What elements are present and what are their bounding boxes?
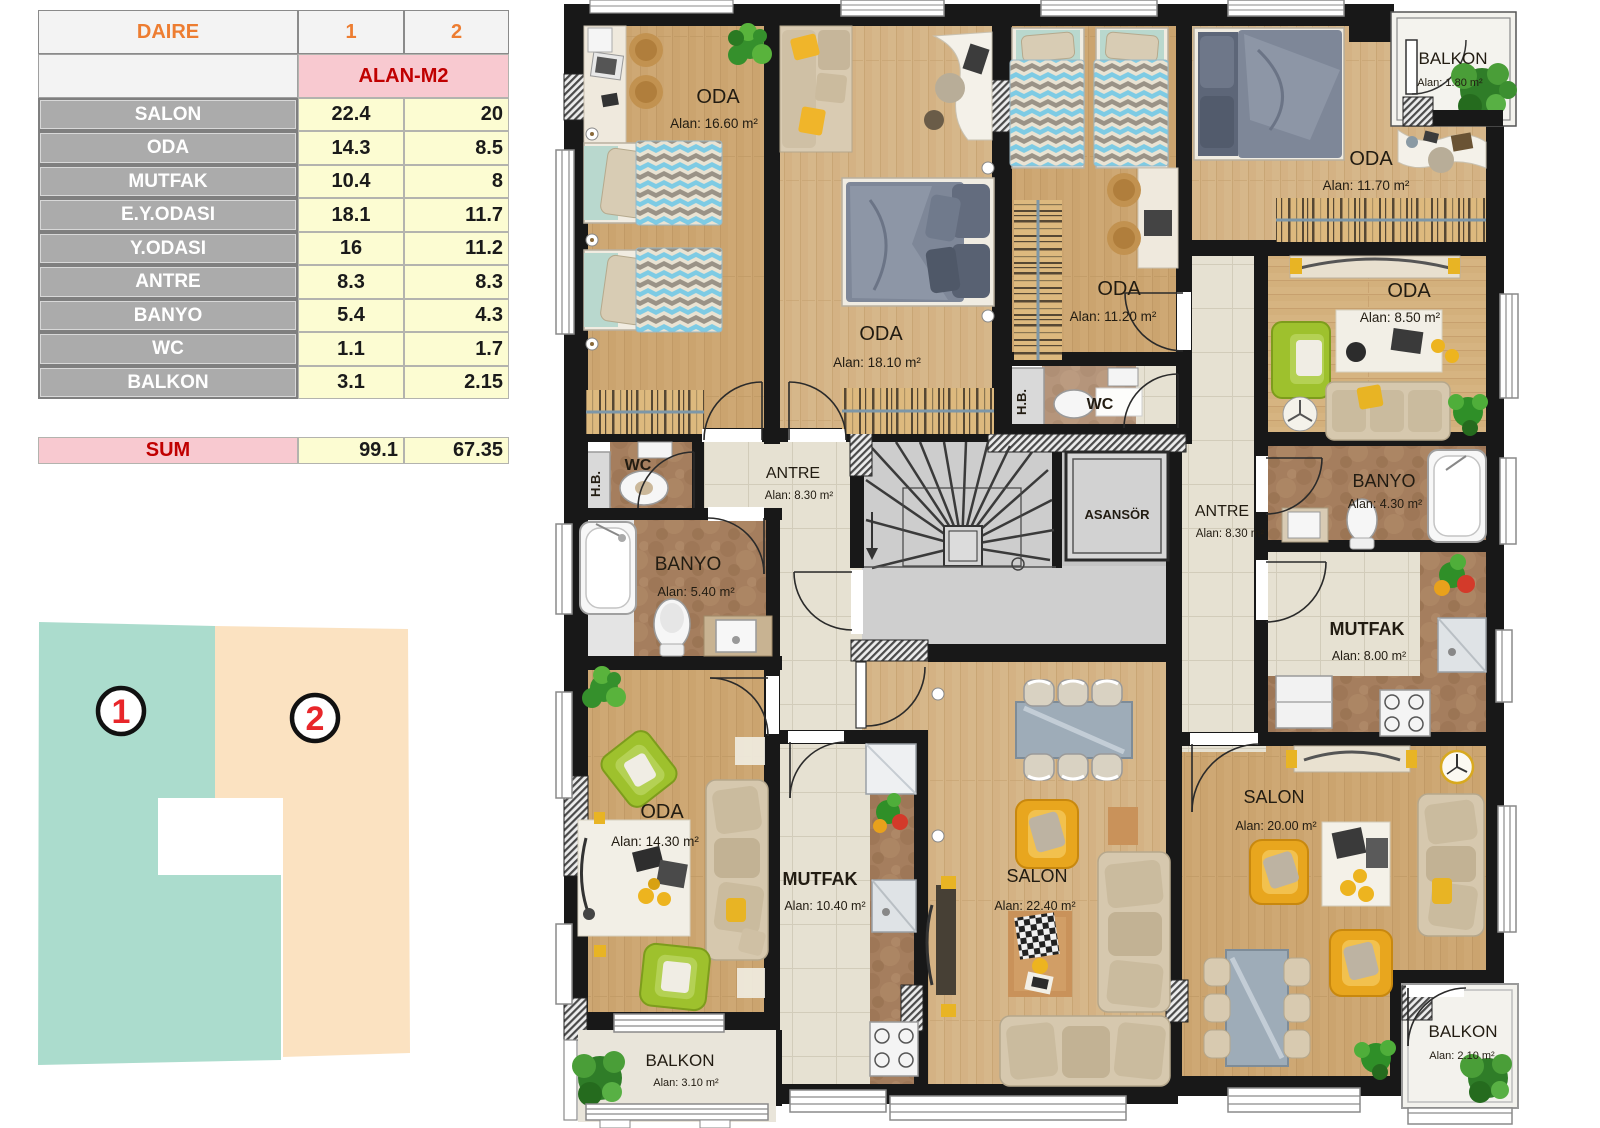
svg-text:Alan: 3.10 m²: Alan: 3.10 m² xyxy=(653,1077,719,1089)
svg-text:MUTFAK: MUTFAK xyxy=(783,869,858,889)
svg-text:BALKON: BALKON xyxy=(1419,49,1488,68)
svg-text:ODA: ODA xyxy=(1097,278,1141,300)
svg-text:Alan: 22.40 m²: Alan: 22.40 m² xyxy=(994,899,1075,913)
svg-text:ODA: ODA xyxy=(696,86,740,108)
svg-text:ODA: ODA xyxy=(1349,148,1393,170)
svg-text:Alan: 8.30 m²: Alan: 8.30 m² xyxy=(765,490,834,502)
svg-text:Alan: 1.80 m²: Alan: 1.80 m² xyxy=(1417,77,1483,89)
svg-text:SALON: SALON xyxy=(1006,866,1067,886)
svg-text:ODA: ODA xyxy=(1387,280,1431,302)
svg-text:Alan: 2.10 m²: Alan: 2.10 m² xyxy=(1429,1050,1495,1062)
svg-text:Alan: 20.00 m²: Alan: 20.00 m² xyxy=(1235,819,1316,833)
svg-text:BALKON: BALKON xyxy=(1429,1022,1498,1041)
svg-text:H.B.: H.B. xyxy=(1014,389,1029,415)
svg-text:Alan: 16.60 m²: Alan: 16.60 m² xyxy=(670,116,758,131)
svg-text:BALKON: BALKON xyxy=(646,1051,715,1070)
svg-text:ODA: ODA xyxy=(859,323,903,345)
svg-text:ANTRE: ANTRE xyxy=(1195,503,1249,520)
svg-text:ANTRE: ANTRE xyxy=(766,465,820,482)
svg-text:Alan: 8.50 m²: Alan: 8.50 m² xyxy=(1360,310,1441,325)
svg-text:Alan: 11.70 m²: Alan: 11.70 m² xyxy=(1323,178,1410,193)
svg-text:Alan: 8.00 m²: Alan: 8.00 m² xyxy=(1332,649,1406,663)
svg-text:Alan: 4.30 m²: Alan: 4.30 m² xyxy=(1348,497,1422,511)
svg-text:H.B.: H.B. xyxy=(588,471,603,497)
svg-text:WC: WC xyxy=(1087,396,1114,413)
svg-text:BANYO: BANYO xyxy=(1352,471,1415,491)
svg-text:2: 2 xyxy=(306,700,325,738)
svg-text:Alan: 8.30 m²: Alan: 8.30 m² xyxy=(1196,528,1265,540)
svg-text:Alan: 11.20 m²: Alan: 11.20 m² xyxy=(1070,309,1157,324)
svg-text:Alan: 18.10 m²: Alan: 18.10 m² xyxy=(833,355,921,370)
svg-text:MUTFAK: MUTFAK xyxy=(1330,619,1405,639)
svg-text:BANYO: BANYO xyxy=(655,554,722,575)
svg-text:Alan: 14.30 m²: Alan: 14.30 m² xyxy=(611,834,699,849)
svg-text:SALON: SALON xyxy=(1243,787,1304,807)
svg-text:ASANSÖR: ASANSÖR xyxy=(1084,507,1150,522)
svg-text:Alan: 5.40 m²: Alan: 5.40 m² xyxy=(657,584,735,599)
svg-text:ODA: ODA xyxy=(640,801,684,823)
svg-text:Alan: 10.40 m²: Alan: 10.40 m² xyxy=(784,899,865,913)
svg-text:WC: WC xyxy=(625,457,652,474)
svg-text:1: 1 xyxy=(112,693,131,731)
